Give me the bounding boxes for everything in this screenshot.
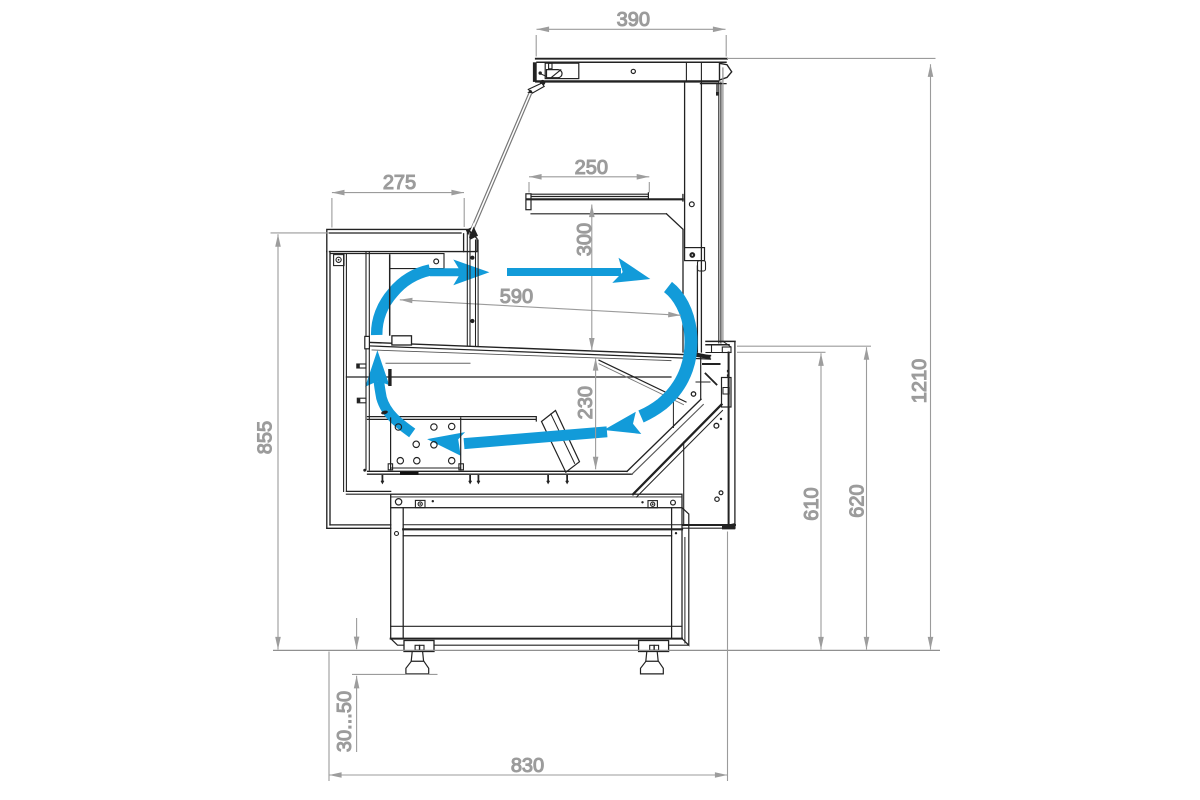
svg-text:590: 590: [500, 286, 533, 308]
svg-text:30...50: 30...50: [334, 691, 356, 752]
svg-text:275: 275: [383, 172, 416, 194]
svg-text:390: 390: [617, 9, 650, 31]
svg-text:250: 250: [575, 157, 608, 179]
svg-text:855: 855: [255, 421, 277, 454]
svg-text:1210: 1210: [909, 359, 931, 404]
svg-text:830: 830: [511, 755, 544, 777]
svg-text:230: 230: [575, 386, 597, 419]
svg-text:610: 610: [801, 487, 823, 520]
svg-text:300: 300: [574, 223, 596, 256]
svg-text:620: 620: [847, 484, 869, 517]
